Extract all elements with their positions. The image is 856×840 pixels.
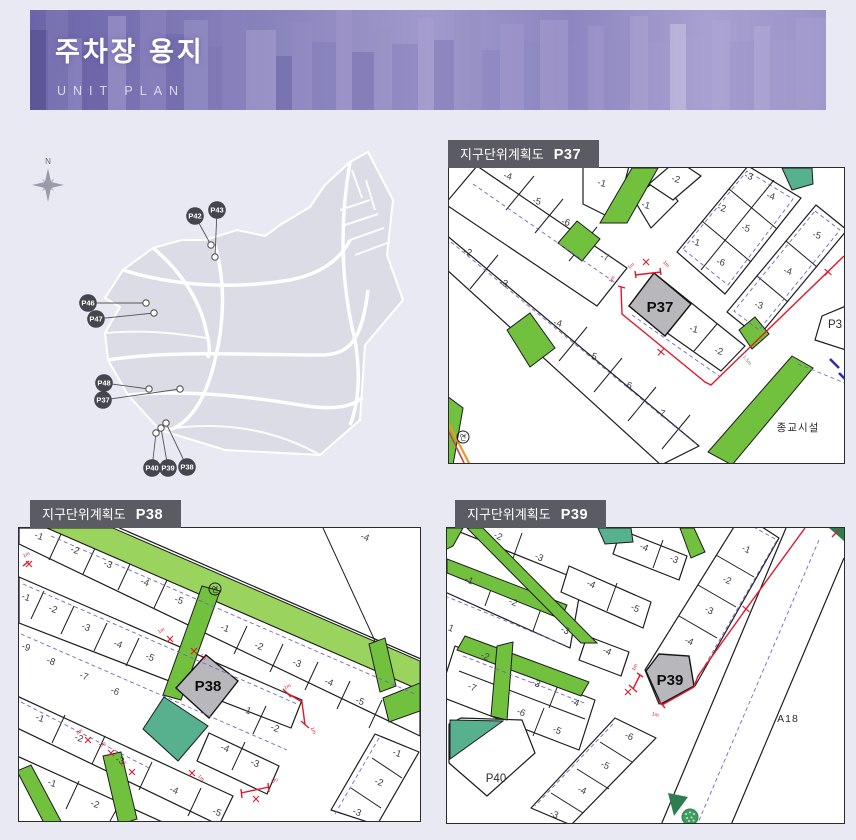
- lot-label: P40: [486, 773, 506, 785]
- lot-label: 1: [447, 623, 455, 635]
- measure-label: 1m: [631, 663, 639, 672]
- p38-map-panel: -1-2-3-4-5-4-1-2-3-4-5-1-2-3-4-5-9-8-7-6…: [18, 527, 421, 822]
- svg-text:P39: P39: [161, 464, 174, 473]
- p38-panel-code: P38: [136, 507, 163, 523]
- measure-label: 1m: [270, 777, 279, 785]
- p39-panel-code: P39: [561, 507, 588, 523]
- lot-label: P3: [828, 319, 842, 331]
- page-title: 주차장 용지: [55, 30, 205, 69]
- lot-label: -6: [109, 685, 121, 698]
- x-mark: [189, 770, 195, 776]
- measure-label: 1m: [283, 683, 292, 691]
- blue-chevron-marks: [830, 359, 844, 382]
- p39-panel-label: 지구단위계획도P39: [455, 500, 606, 528]
- lot-label: -8: [45, 655, 57, 668]
- svg-text:P46: P46: [81, 299, 94, 308]
- park-entrance-symbols: [668, 793, 698, 823]
- p37-panel-title: 지구단위계획도: [460, 147, 544, 162]
- measure-label: 1m: [309, 726, 317, 735]
- measure-label: 1m: [157, 627, 166, 636]
- lot-label: -5: [531, 195, 542, 208]
- overview-location-map: N P42P43P46P47P48P37P40P39P38: [10, 140, 430, 485]
- svg-text:P47: P47: [89, 315, 102, 324]
- p39-map: -2-3-1-2-3-4-5-4-3-1-2-3-4-4-2-3-4-7-6-5…: [447, 528, 844, 823]
- p37-panel-code: P37: [554, 147, 581, 163]
- measure-label: 1m: [661, 260, 670, 269]
- measure-label: 1m: [651, 711, 659, 719]
- p38-panel-label: 지구단위계획도P38: [30, 500, 181, 528]
- compass-north-label: N: [45, 157, 51, 166]
- measure-label: 1m: [22, 551, 31, 559]
- svg-text:P42: P42: [188, 212, 201, 221]
- page: { "header": { "title": "주차장 용지", "subtit…: [0, 0, 856, 840]
- lot-label: -4: [552, 317, 563, 330]
- x-mark: [253, 796, 259, 802]
- p38-map: -1-2-3-4-5-4-1-2-3-4-5-1-2-3-4-5-9-8-7-6…: [19, 528, 420, 821]
- lot-label: -2: [269, 722, 281, 735]
- svg-text:P37: P37: [96, 396, 109, 405]
- compass: [32, 168, 64, 202]
- lot-label: 연: [460, 434, 466, 442]
- p39-map-panel: -2-3-1-2-3-4-5-4-3-1-2-3-4-4-2-3-4-7-6-5…: [446, 527, 845, 824]
- highlight-parcel-label: P37: [647, 299, 674, 316]
- svg-text:P43: P43: [210, 206, 223, 215]
- svg-text:P38: P38: [180, 463, 193, 472]
- p37-panel-label: 지구단위계획도P37: [448, 140, 599, 168]
- lot-label: -7: [78, 670, 90, 683]
- x-mark: [625, 689, 631, 695]
- site-marker: P40: [143, 430, 161, 477]
- lot-label: -6: [560, 216, 571, 229]
- p37-map: -4-5-6-7-2-3-4-5-6-7-1-1-2-3-2-1-4-5-6-5…: [449, 168, 844, 463]
- x-mark: [643, 259, 649, 265]
- page-subtitle: UNIT PLAN: [57, 84, 185, 98]
- plus-mark: [655, 346, 668, 359]
- lot-label: -4: [502, 170, 513, 183]
- lot-label: 연: [212, 586, 218, 594]
- p37-map-panel: -4-5-6-7-2-3-4-5-6-7-1-1-2-3-2-1-4-5-6-5…: [448, 167, 845, 464]
- lot-label: -9: [20, 641, 32, 654]
- highlight-parcel-label: P39: [657, 672, 684, 689]
- measure-label: 1m: [627, 262, 636, 271]
- svg-text:P48: P48: [97, 379, 110, 388]
- x-mark: [167, 636, 173, 642]
- svg-text:P40: P40: [145, 464, 158, 473]
- lot-label: A18: [777, 713, 799, 725]
- measure-label: 1.5m: [741, 354, 753, 366]
- highlight-parcel-label: P38: [195, 678, 222, 695]
- p38-panel-title: 지구단위계획도: [42, 507, 126, 522]
- p39-panel-title: 지구단위계획도: [467, 507, 551, 522]
- lot-label: 종교시설: [777, 422, 820, 434]
